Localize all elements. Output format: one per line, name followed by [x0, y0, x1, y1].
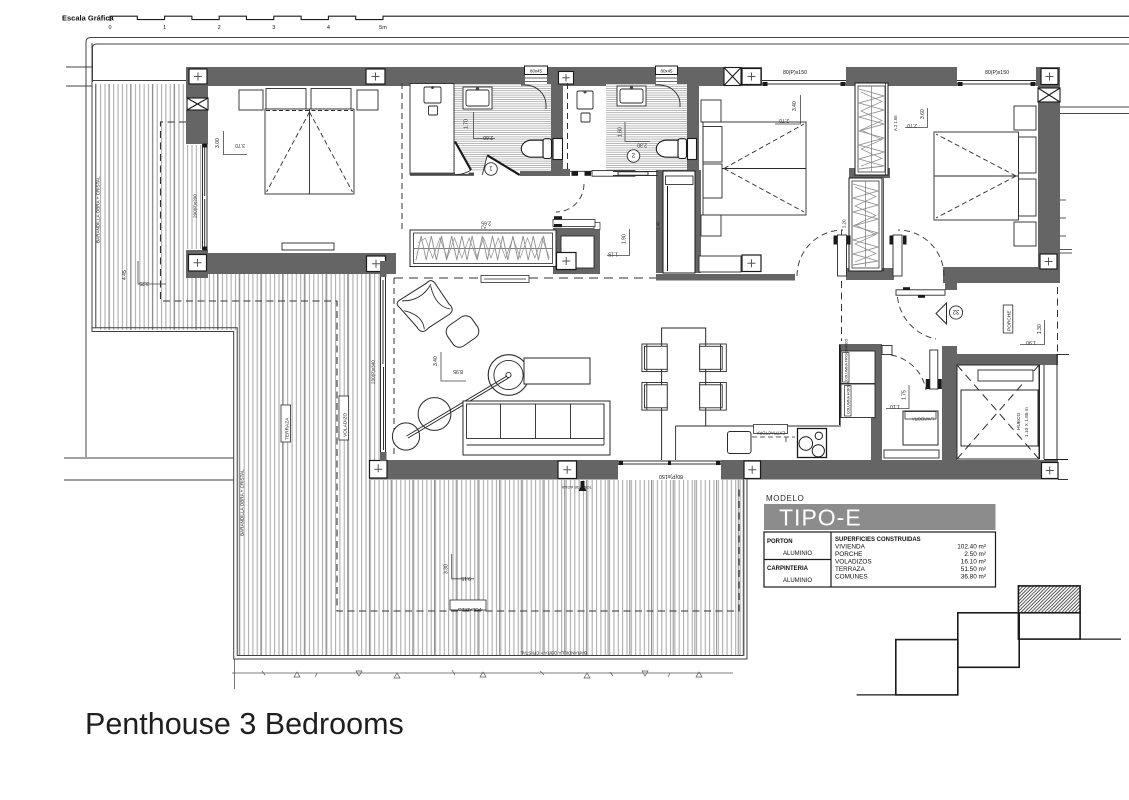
svg-text:8.95: 8.95	[453, 368, 463, 374]
svg-text:ALUMINIO: ALUMINIO	[783, 578, 812, 584]
svg-text:51.50 m²: 51.50 m²	[961, 566, 986, 573]
svg-text:102.40 m²: 102.40 m²	[957, 544, 986, 551]
svg-text:80(P)x150: 80(P)x150	[783, 70, 807, 76]
svg-text:TERRAZA: TERRAZA	[835, 566, 866, 573]
svg-text:VIVIENDA: VIVIENDA	[835, 544, 866, 551]
svg-text:80x45: 80x45	[530, 68, 543, 73]
svg-text:ALUMINIO: ALUMINIO	[783, 551, 812, 557]
svg-text:BARANDILLA OBRA + CRISTAL: BARANDILLA OBRA + CRISTAL	[520, 651, 587, 656]
svg-text:3.00: 3.00	[215, 138, 221, 148]
svg-text:3.40: 3.40	[433, 356, 439, 366]
svg-text:BARANDILLA OBRA + CRISTAL: BARANDILLA OBRA + CRISTAL	[240, 469, 245, 536]
svg-text:TOMA DE AGUA: TOMA DE AGUA	[562, 485, 592, 490]
svg-text:TERRAZA: TERRAZA	[285, 417, 291, 440]
svg-text:2.50 m²: 2.50 m²	[964, 551, 986, 558]
svg-text:COMUNES: COMUNES	[835, 574, 868, 581]
svg-text:A.2 1.65: A.2 1.65	[893, 115, 898, 131]
svg-text:PORTON: PORTON	[767, 539, 793, 545]
svg-text:A.1: A.1	[481, 226, 486, 230]
svg-text:EXTRACTORA: EXTRACTORA	[756, 431, 785, 436]
svg-text:1.10 X 1.55 m: 1.10 X 1.55 m	[1024, 407, 1030, 437]
svg-text:3.25: 3.25	[139, 280, 149, 286]
svg-text:BARANDILLA OBRA + CRISTAL: BARANDILLA OBRA + CRISTAL	[96, 176, 101, 243]
svg-text:9.15: 9.15	[461, 575, 471, 581]
svg-text:2.30: 2.30	[637, 142, 647, 148]
svg-text:80(P)x150: 80(P)x150	[659, 473, 683, 479]
svg-text:VOLADIZO: VOLADIZO	[457, 606, 482, 612]
svg-text:3.40: 3.40	[792, 101, 798, 111]
svg-text:3.60: 3.60	[920, 109, 926, 119]
svg-text:CARPINTERIA: CARPINTERIA	[767, 566, 809, 572]
svg-text:SUPERFICIES CONSTRUIDAS: SUPERFICIES CONSTRUIDAS	[835, 537, 921, 543]
svg-text:TIPO-E: TIPO-E	[779, 505, 862, 531]
svg-text:PORCHE: PORCHE	[1007, 310, 1013, 331]
svg-text:VOLADIZOS: VOLADIZOS	[835, 559, 872, 566]
svg-text:1: 1	[163, 25, 166, 31]
svg-text:3: 3	[272, 25, 275, 31]
svg-text:Escala Gráfica: Escala Gráfica	[62, 14, 115, 23]
svg-text:230(P)x340: 230(P)x340	[371, 360, 376, 384]
svg-text:1.60: 1.60	[618, 127, 624, 137]
svg-text:PORCHE: PORCHE	[835, 551, 862, 558]
svg-text:2: 2	[218, 25, 221, 31]
svg-text:COLUMNA HORNO: COLUMNA HORNO	[847, 382, 851, 414]
svg-text:5m: 5m	[379, 25, 387, 31]
svg-text:80(P)x150: 80(P)x150	[985, 70, 1009, 76]
svg-text:1.75: 1.75	[902, 390, 908, 400]
svg-text:2.20: 2.20	[842, 219, 847, 228]
svg-text:4: 4	[327, 25, 330, 31]
svg-text:2.40: 2.40	[656, 221, 661, 230]
svg-text:LAVADORA: LAVADORA	[912, 417, 934, 422]
svg-text:80x45: 80x45	[661, 68, 674, 73]
svg-text:4.45: 4.45	[122, 270, 128, 280]
svg-text:3.30: 3.30	[444, 564, 450, 574]
svg-text:290(P)x200: 290(P)x200	[193, 194, 198, 218]
svg-text:VOLADIZO: VOLADIZO	[343, 412, 349, 437]
svg-text:2.70: 2.70	[779, 117, 789, 123]
svg-text:1.70: 1.70	[464, 119, 470, 129]
svg-text:0: 0	[108, 25, 111, 31]
svg-text:36.80 m²: 36.80 m²	[961, 574, 986, 581]
svg-text:HUECO: HUECO	[1016, 412, 1022, 430]
svg-text:Penthouse 3 Bedrooms: Penthouse 3 Bedrooms	[85, 707, 404, 741]
svg-text:2.60: 2.60	[483, 134, 493, 140]
svg-text:1.30: 1.30	[1037, 324, 1043, 334]
svg-text:32: 32	[952, 308, 959, 314]
svg-text:3.70: 3.70	[235, 142, 245, 148]
svg-text:1.90: 1.90	[622, 234, 628, 244]
svg-text:COLUMNA FRIGORIFICO: COLUMNA FRIGORIFICO	[845, 338, 849, 381]
svg-text:16.10 m²: 16.10 m²	[961, 559, 986, 566]
svg-text:MODELO: MODELO	[766, 494, 804, 503]
svg-text:2.65: 2.65	[481, 220, 491, 226]
